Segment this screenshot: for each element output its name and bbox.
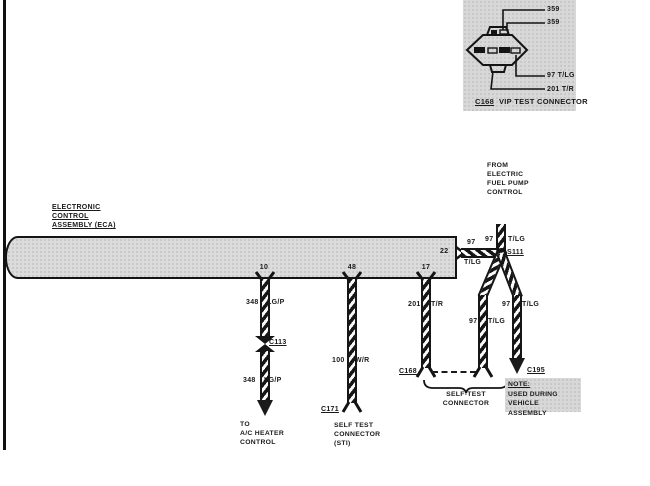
splice-s111-label: S111 <box>507 249 524 257</box>
connector-c168-label: C168 <box>399 368 417 376</box>
vip-pin-label-97tlg: 97 T/LG <box>547 72 575 80</box>
vip-pin-label-359b: 359 <box>547 19 560 27</box>
vip-pin-label-359a: 359 <box>547 6 560 14</box>
hatched-wire-201 <box>421 279 431 368</box>
wire97right-color: T/LG <box>522 301 539 309</box>
self-test-connector-label: SELF-TEST CONNECTOR <box>437 390 495 408</box>
eca-module-bar <box>5 236 457 279</box>
note-line1: NOTE: <box>508 380 578 390</box>
vip-caption-code: C168 <box>475 98 494 106</box>
hatched-wire-97-right <box>512 295 522 359</box>
self-test-line2: CONNECTOR <box>437 399 495 408</box>
hatched-wire-leg-right <box>496 251 523 299</box>
wire348-color-upper: LG/P <box>267 299 285 307</box>
connector-c113-label: C113 <box>269 339 287 347</box>
wire97eca-circuit: 97 <box>467 239 475 247</box>
arrowhead-icon-ac <box>257 400 273 416</box>
fuel-note-line2: ELECTRIC <box>487 170 529 179</box>
vip-test-connector-panel: 359 359 97 T/LG 201 T/R C168 VIP TEST CO… <box>463 0 576 111</box>
wire100-circuit: 100 <box>332 357 345 365</box>
note-line2: USED DURING <box>508 390 578 400</box>
hatched-wire-100 <box>347 279 357 403</box>
wire97pump-color: T/LG <box>508 236 525 244</box>
wire97left-color: T/LG <box>488 318 505 326</box>
connector-c171-label: C171 <box>321 406 339 414</box>
dest-ac-line3: CONTROL <box>240 438 284 447</box>
hatched-wire-97-left <box>478 295 488 368</box>
vip-caption-title: VIP TEST CONNECTOR <box>499 98 588 106</box>
fuel-note-line3: FUEL PUMP <box>487 179 529 188</box>
from-fuel-pump-note: FROM ELECTRIC FUEL PUMP CONTROL <box>487 161 529 197</box>
page-left-border <box>3 0 6 450</box>
fuel-note-line4: CONTROL <box>487 188 529 197</box>
self-test-line1: SELF-TEST <box>437 390 495 399</box>
hatched-wire-348-upper <box>260 279 270 337</box>
wire97right-circuit: 97 <box>502 301 510 309</box>
eca-pin-22: 22 <box>440 248 448 256</box>
vip-connector-drawing <box>463 0 576 96</box>
wire348-circuit-lower: 348 <box>243 377 256 385</box>
connector-flare-icon <box>473 367 493 378</box>
connector-c195-label: C195 <box>527 367 545 375</box>
dest-ac-line2: A/C HEATER <box>240 429 284 438</box>
wire97eca-color: T/LG <box>464 259 481 267</box>
wiring-diagram-page: 359 359 97 T/LG 201 T/R C168 VIP TEST CO… <box>0 0 650 486</box>
dest-sti-line2: CONNECTOR <box>334 430 380 439</box>
wire348-color-lower: LG/P <box>264 377 282 385</box>
wire201-color: T/R <box>431 301 443 309</box>
eca-label: ELECTRONIC CONTROL ASSEMBLY (ECA) <box>52 203 116 230</box>
arrowhead-icon-c195 <box>509 358 525 374</box>
dest-ac-line1: TO <box>240 420 284 429</box>
dest-sti-line1: SELF TEST <box>334 421 380 430</box>
eca-label-line1: ELECTRONIC <box>52 203 116 212</box>
connector-flare-icon <box>342 402 362 413</box>
dashed-link-line <box>432 371 476 373</box>
wire97left-circuit: 97 <box>469 318 477 326</box>
wire97pump-circuit: 97 <box>485 236 493 244</box>
eca-label-line2: CONTROL <box>52 212 116 221</box>
eca-label-line3: ASSEMBLY (ECA) <box>52 221 116 230</box>
dest-ac-heater: TO A/C HEATER CONTROL <box>240 420 284 447</box>
vip-pin-label-201tr: 201 T/R <box>547 86 574 94</box>
note-line3: VEHICLE ASSEMBLY <box>508 399 578 418</box>
note-box: NOTE: USED DURING VEHICLE ASSEMBLY <box>505 378 581 412</box>
fuel-note-line1: FROM <box>487 161 529 170</box>
wire100-color: W/R <box>355 357 370 365</box>
dest-sti-line3: (STI) <box>334 439 380 448</box>
dest-sti: SELF TEST CONNECTOR (STI) <box>334 421 380 448</box>
wire201-circuit: 201 <box>408 301 421 309</box>
wire348-circuit-upper: 348 <box>246 299 259 307</box>
